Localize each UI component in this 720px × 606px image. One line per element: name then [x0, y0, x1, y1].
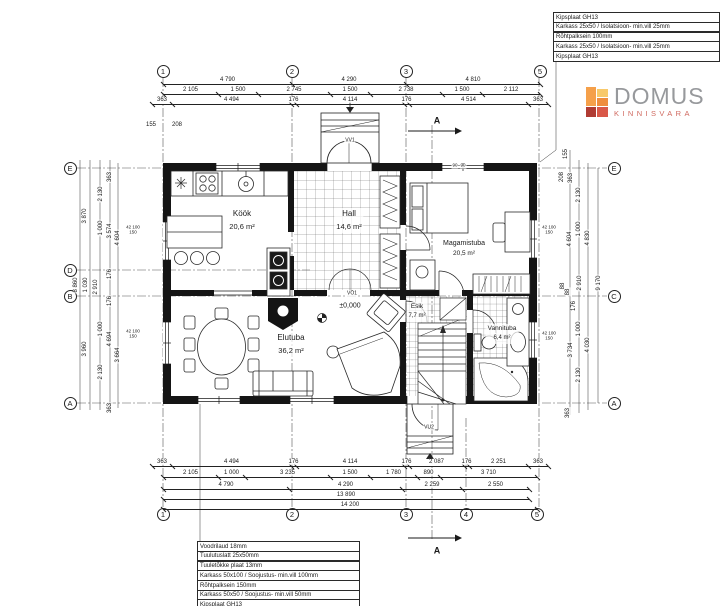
- dim-value: 4 290: [337, 482, 354, 488]
- dim-line: [152, 104, 548, 105]
- annotation-label: 3 960: [82, 340, 88, 357]
- dim-tick: [160, 82, 166, 88]
- annotation-label: 2 130: [576, 366, 582, 383]
- dim-line: [163, 499, 529, 500]
- dim-value: 2 251: [490, 459, 507, 465]
- room-label: Hall14,6 m²: [334, 208, 363, 233]
- level-marker-label: ±0,000: [338, 302, 361, 309]
- dim-line: [163, 489, 529, 490]
- logo-square: [586, 107, 596, 117]
- dim-value: 4 114: [342, 459, 359, 465]
- dim-value: 4 514: [460, 97, 477, 103]
- room-area: 20,6 m²: [229, 221, 254, 233]
- grid-bubble: 2: [286, 65, 299, 78]
- dim-value: 176: [400, 97, 412, 103]
- dim-tick: [149, 102, 155, 108]
- dim-value: 4 810: [464, 77, 481, 83]
- annotation-label: 3 870: [82, 207, 88, 224]
- annotation-label: 363: [568, 172, 574, 184]
- annotation-label: 2 130: [576, 186, 582, 203]
- dim-line: [163, 509, 537, 510]
- dim-value: 13 890: [336, 492, 356, 498]
- annotation-label: 88: [565, 288, 571, 297]
- annotation-label: 176: [571, 300, 577, 312]
- dim-line: [163, 84, 540, 85]
- dim-value: 176: [460, 459, 472, 465]
- room-area: 14,6 m²: [336, 221, 361, 233]
- room-area: 36,2 m²: [277, 345, 304, 357]
- dim-value: 176: [287, 97, 299, 103]
- grid-bubble: C: [608, 290, 621, 303]
- annotation-label: 2 910: [577, 274, 583, 291]
- dim-value: 2 550: [487, 482, 504, 488]
- grid-bubble: D: [64, 264, 77, 277]
- dim-tick: [160, 475, 166, 481]
- annotation-label: 155: [145, 122, 157, 128]
- room-area: 7,7 m²: [408, 312, 425, 322]
- legend-row: Kipsplaat GH13: [553, 51, 720, 62]
- room-label: Köök20,6 m²: [227, 208, 256, 233]
- dim-value: 1 500: [453, 87, 470, 93]
- annotation-label: 176: [107, 268, 113, 280]
- floor-plan-sheet: 123512345EDBAECA4 7904 2904 8102 1051 50…: [0, 0, 720, 606]
- dim-value: 2 105: [182, 470, 199, 476]
- logo-square: [597, 107, 608, 117]
- grid-bubble: E: [64, 162, 77, 175]
- dim-value: 3 710: [480, 470, 497, 476]
- dim-value: 3 235: [279, 470, 296, 476]
- annotation-label: 42 100 150: [541, 331, 557, 340]
- grid-bubble: A: [608, 397, 621, 410]
- logo-square: [586, 87, 596, 106]
- annotation-label: 2 130: [98, 363, 104, 380]
- dim-value: 4 790: [217, 482, 234, 488]
- dim-value: 4 494: [223, 459, 240, 465]
- room-name: Vannituba: [488, 324, 517, 334]
- room-label: Magamistuba20,5 m²: [441, 238, 487, 260]
- dim-tick: [160, 497, 166, 503]
- annotation-label: 42 100 150: [125, 225, 141, 234]
- annotation-label: 208: [171, 122, 183, 128]
- grid-bubble: 1: [157, 65, 170, 78]
- room-label: Esik7,7 m²: [406, 302, 427, 322]
- dim-value: 4 494: [223, 97, 240, 103]
- room-area: 20,5 m²: [443, 249, 485, 259]
- dim-value: 363: [156, 97, 168, 103]
- dim-value: 1 500: [229, 87, 246, 93]
- grid-bubble: 5: [534, 65, 547, 78]
- dim-value: 2 745: [285, 87, 302, 93]
- room-name: Hall: [336, 208, 361, 221]
- dim-value: 4 290: [340, 77, 357, 83]
- logo-subtitle: KINNISVARA: [614, 109, 705, 118]
- logo-square: [597, 89, 608, 97]
- dim-value: 2 087: [428, 459, 445, 465]
- dim-tick: [149, 464, 155, 470]
- grid-bubble: A: [64, 397, 77, 410]
- annotation-label: 176: [107, 295, 113, 307]
- dim-value: 1 500: [341, 87, 358, 93]
- dim-value: 1 780: [385, 470, 402, 476]
- annotation-label: 1 030: [83, 276, 89, 293]
- annotation-label: 90: [451, 164, 458, 169]
- dim-value: 2 112: [503, 87, 520, 93]
- annotation-label: 155: [563, 148, 569, 160]
- annotation-label: 90: [459, 164, 466, 169]
- room-label: Vannituba6,4 m²: [486, 324, 519, 344]
- room-area: 6,4 m²: [488, 334, 517, 344]
- annotation-label: 4 604: [567, 230, 573, 247]
- wall-legend-top-right: Kipsplaat GH13Karkass 25x50 / Isolatsioo…: [553, 13, 720, 62]
- dim-value: 890: [422, 470, 434, 476]
- dim-value: 2 105: [182, 87, 199, 93]
- dim-value: 363: [156, 459, 168, 465]
- annotation-label: 4 830: [585, 229, 591, 246]
- annotation-label: 8 860: [73, 276, 79, 293]
- door-label-vu2: VU2: [423, 425, 435, 430]
- annotation-label: 1 000: [576, 320, 582, 337]
- annotation-label: 1 000: [98, 219, 104, 236]
- dim-value: 363: [532, 459, 544, 465]
- logo-square: [597, 98, 608, 106]
- annotation-label: 4 030: [585, 336, 591, 353]
- grid-bubble: E: [608, 162, 621, 175]
- annotation-label: 9 170: [596, 274, 602, 291]
- dim-value: 2 259: [423, 482, 440, 488]
- annotation-label: 208: [559, 171, 565, 183]
- dim-line: [152, 466, 548, 467]
- dim-value: 176: [287, 459, 299, 465]
- dim-value: 363: [532, 97, 544, 103]
- wall-legend-bottom-left: Voodrilaud 18mmTuulutuslatt 25x50mmTuule…: [197, 542, 360, 606]
- annotation-label: 1 000: [98, 320, 104, 337]
- dim-value: 14 200: [340, 502, 360, 508]
- annotation-label: 3 734: [568, 341, 574, 358]
- dim-value: 4 790: [219, 77, 236, 83]
- section-marker-a-bottom: A: [433, 546, 442, 555]
- annotation-label: 3 664: [115, 346, 121, 363]
- room-name: Elutuba: [277, 332, 304, 345]
- annotation-label: 3 574: [107, 222, 113, 239]
- logo-title: DOMUS: [614, 86, 705, 107]
- dim-value: 176: [400, 459, 412, 465]
- dim-value: 2 738: [397, 87, 414, 93]
- annotation-label: 2 130: [98, 185, 104, 202]
- door-label-vv1: VV1: [344, 138, 355, 143]
- domus-logo: DOMUS KINNISVARA: [586, 86, 705, 118]
- dim-tick: [160, 487, 166, 493]
- annotation-label: 4 604: [115, 229, 121, 246]
- room-name: Magamistuba: [443, 238, 485, 249]
- grid-bubble: 3: [400, 65, 413, 78]
- domus-logo-mark: [586, 87, 610, 118]
- room-name: Esik: [408, 302, 425, 312]
- annotation-label: 4 694: [107, 330, 113, 347]
- annotation-label: 1 000: [576, 220, 582, 237]
- dim-value: 4 114: [342, 97, 359, 103]
- annotation-label: 363: [107, 171, 113, 183]
- annotation-label: 363: [565, 407, 571, 419]
- annotation-label: 363: [107, 402, 113, 414]
- room-label: Elutuba36,2 m²: [275, 332, 306, 357]
- room-name: Köök: [229, 208, 254, 221]
- legend-row: Kipsplaat GH13: [197, 599, 360, 606]
- section-marker-a-top: A: [433, 116, 442, 125]
- annotation-label: 42 100 150: [125, 329, 141, 338]
- dim-value: 1 500: [341, 470, 358, 476]
- annotation-label: 2 910: [93, 278, 99, 295]
- door-label-vo1: VÖ1: [346, 291, 358, 296]
- dim-value: 1 000: [223, 470, 240, 476]
- annotation-label: 42 100 150: [541, 225, 557, 234]
